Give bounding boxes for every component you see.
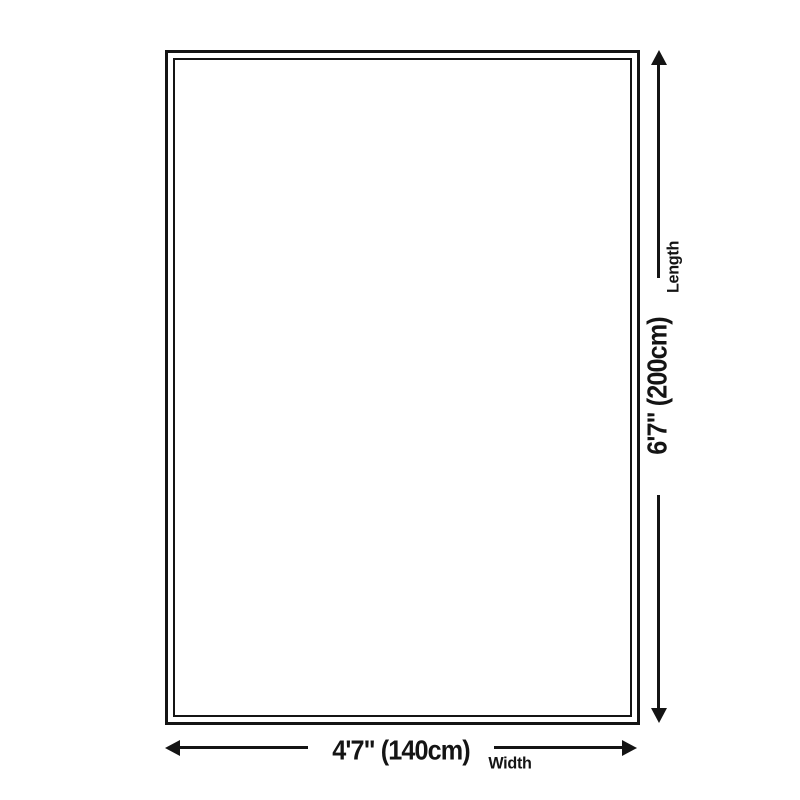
width-dimension-line-right (494, 746, 624, 749)
dimension-diagram: Length 6'7" (200cm) 4'7" (140cm) Width (0, 0, 800, 800)
length-value: 6'7" (200cm) (643, 317, 674, 454)
width-dimension-line-left (178, 746, 308, 749)
length-dimension-line-upper (657, 62, 660, 278)
length-dimension-line-lower (657, 495, 660, 711)
length-arrow-down-icon (651, 708, 667, 723)
width-arrow-right-icon (622, 740, 637, 756)
width-value: 4'7" (140cm) (332, 736, 469, 767)
product-outline (165, 50, 640, 725)
length-label: Length (665, 241, 684, 293)
width-label: Width (488, 755, 531, 774)
product-outline-inner-border (173, 58, 632, 717)
